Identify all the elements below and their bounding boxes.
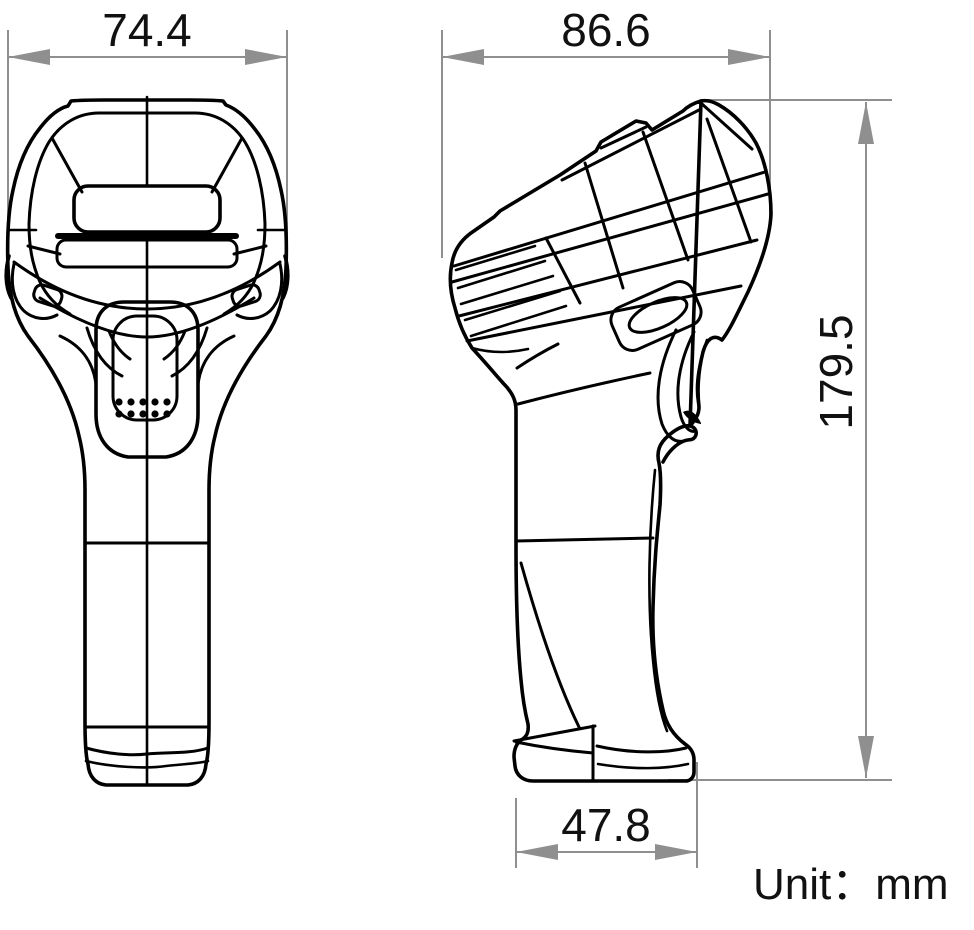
dimension-label-base-depth: 47.8 (561, 799, 651, 851)
side-button-oval (624, 291, 691, 340)
scan-window (74, 186, 220, 232)
rear-hook (658, 330, 684, 441)
arrowhead-right-icon (655, 844, 697, 860)
dimension-label-front-width: 74.4 (102, 4, 192, 56)
dimension-side-depth (442, 30, 770, 258)
dimension-overall-height (668, 100, 892, 780)
side-button-plate (606, 277, 705, 355)
technical-drawing-svg: 74.4 86.6 179.5 47.8 Unit：mm (0, 0, 974, 930)
arrowhead-left-icon (516, 844, 558, 860)
drawing-canvas: 74.4 86.6 179.5 47.8 Unit：mm (0, 0, 974, 930)
arrowhead-left-icon (442, 49, 484, 65)
arrowhead-left-icon (8, 49, 50, 65)
arrowhead-up-icon (858, 102, 874, 144)
side-view-drawing (450, 101, 771, 781)
arrowhead-right-icon (245, 49, 287, 65)
arrowhead-right-icon (728, 49, 770, 65)
scanner-outline (450, 101, 771, 781)
front-view-drawing (6, 97, 288, 785)
dimension-label-side-depth: 86.6 (561, 4, 651, 56)
arrowhead-down-icon (858, 736, 874, 778)
dimension-label-overall-height: 179.5 (810, 314, 862, 429)
unit-label: Unit：mm (753, 860, 949, 909)
dimension-annotations (8, 30, 892, 868)
